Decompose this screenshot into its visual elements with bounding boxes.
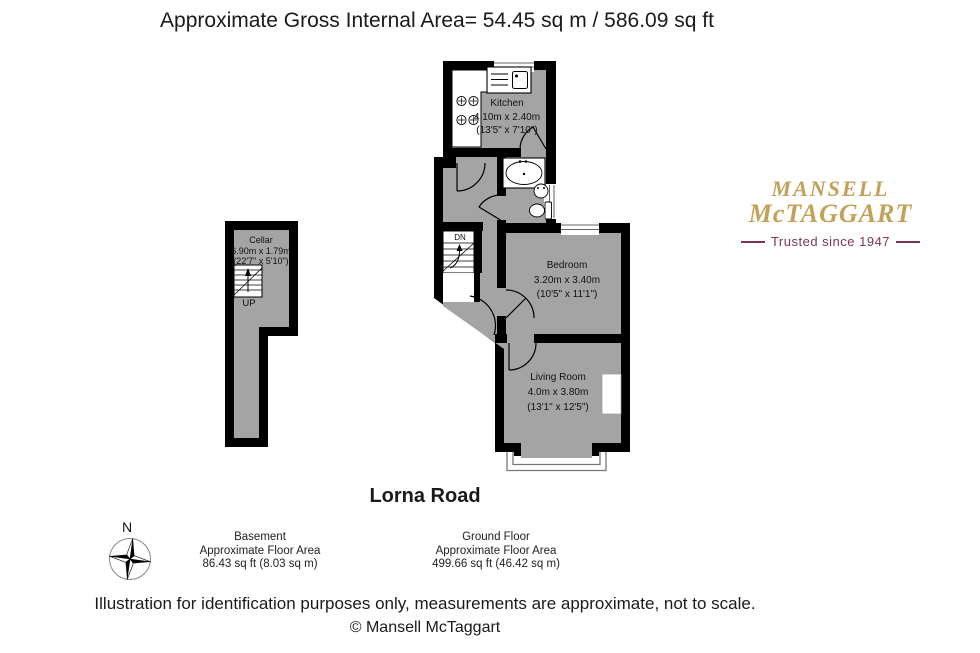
ground-floor-name: Ground Floor [391, 531, 601, 545]
tagline-rule-right [896, 241, 920, 243]
ground-floor-plan: DN [434, 58, 630, 473]
stairs-down: DN [443, 231, 474, 302]
basement-name: Basement [155, 531, 365, 545]
bedroom-label: Bedroom [547, 260, 588, 271]
bathtub-icon [503, 158, 545, 188]
cellar-metric: 6.90m x 1.79m [231, 246, 291, 256]
cellar-label: Cellar [249, 235, 273, 245]
bedroom-metric: 3.20m x 3.40m [534, 275, 600, 286]
cellar-imperial: (22'7" x 5'10") [233, 256, 288, 266]
tagline-rule-left [741, 241, 765, 243]
brand-name-line2: McTAGGART [733, 200, 928, 227]
basement-area-label: Approximate Floor Area [155, 545, 365, 559]
bay-window [503, 441, 610, 473]
basement-area: 86.43 sq ft (8.03 sq m) [155, 558, 365, 572]
stairs-down-label: DN [454, 233, 466, 242]
living-room-label: Living Room [530, 372, 586, 383]
kitchen-label: Kitchen [490, 98, 523, 109]
floorplan-page: Approximate Gross Internal Area= 54.45 s… [0, 0, 980, 653]
kitchen-metric: 4.10m x 2.40m [474, 112, 540, 123]
ground-floor-info: Ground Floor Approximate Floor Area 499.… [391, 531, 601, 572]
living-room-recess [602, 374, 621, 414]
stairs-up-label: UP [242, 298, 255, 309]
brand-tagline-row: Trusted since 1947 [733, 234, 928, 249]
compass-north-label: N [122, 519, 132, 535]
basin-icon [534, 184, 548, 198]
basement-floor-info: Basement Approximate Floor Area 86.43 sq… [155, 531, 365, 572]
living-room-metric: 4.0m x 3.80m [528, 387, 589, 398]
living-room-imperial: (13'1" x 12'5") [527, 402, 589, 413]
brand-name-line1: MANSELL [733, 178, 928, 200]
brand-logo: MANSELL McTAGGART Trusted since 1947 [733, 178, 928, 249]
understairs-void [443, 273, 474, 302]
street-name: Lorna Road [0, 485, 850, 508]
kitchen-sink-icon [487, 67, 531, 93]
cellar-plan: UP Cellar 6.90m x 1.79m (22'7" x 5'10") [225, 221, 298, 447]
kitchen-imperial: (13'5" x 7'10") [476, 125, 538, 136]
disclaimer-text: Illustration for identification purposes… [0, 594, 850, 614]
bedroom-window [561, 220, 599, 235]
copyright-text: © Mansell McTaggart [0, 619, 850, 637]
brand-tagline: Trusted since 1947 [771, 234, 890, 249]
compass-icon: N [106, 519, 153, 583]
ground-floor-area-label: Approximate Floor Area [391, 545, 601, 559]
ground-floor-area: 499.66 sq ft (46.42 sq m) [391, 558, 601, 572]
bedroom-imperial: (10'5" x 11'1") [537, 289, 598, 300]
